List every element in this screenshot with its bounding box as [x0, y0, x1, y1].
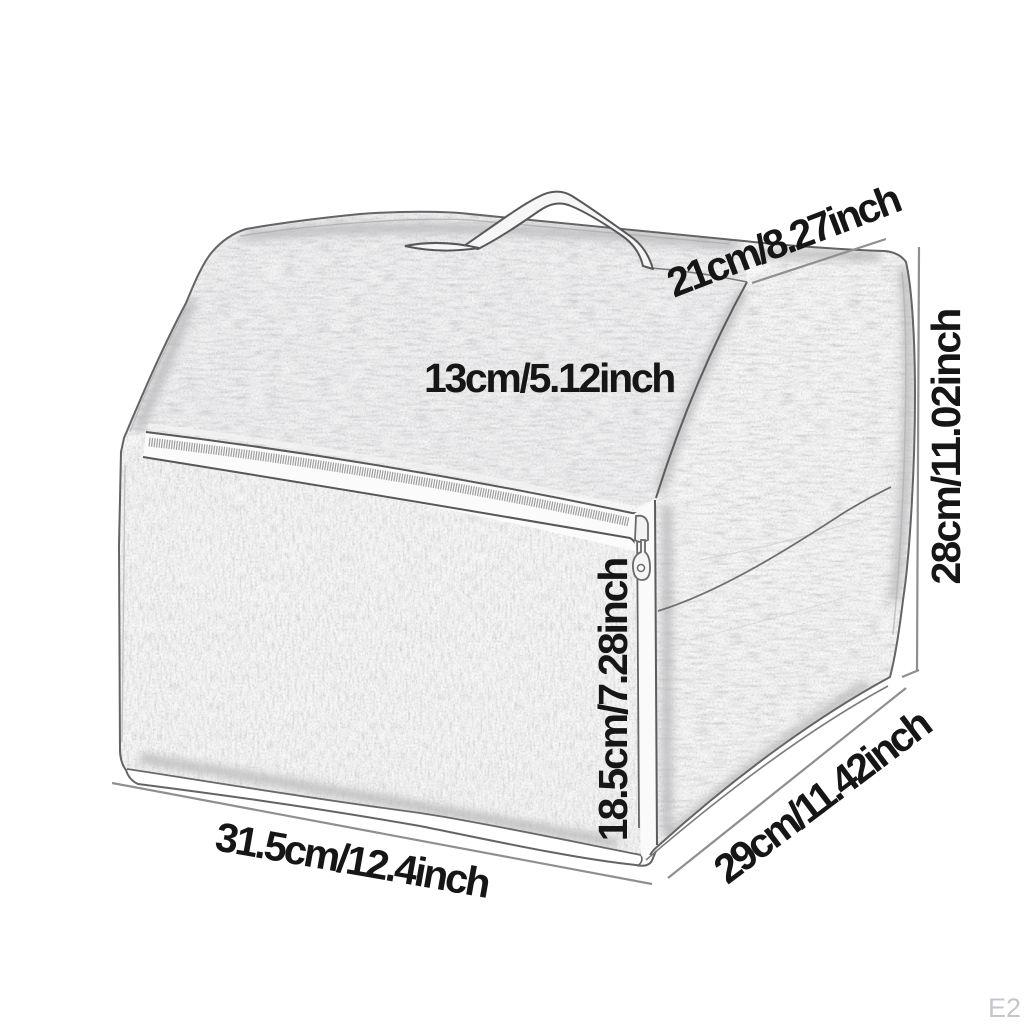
- svg-text:13cm/5.12inch: 13cm/5.12inch: [424, 355, 674, 401]
- svg-text:E2: E2: [988, 993, 1021, 1023]
- svg-text:18.5cm/7.28inch: 18.5cm/7.28inch: [590, 559, 636, 842]
- svg-text:28cm/11.02inch: 28cm/11.02inch: [923, 310, 969, 585]
